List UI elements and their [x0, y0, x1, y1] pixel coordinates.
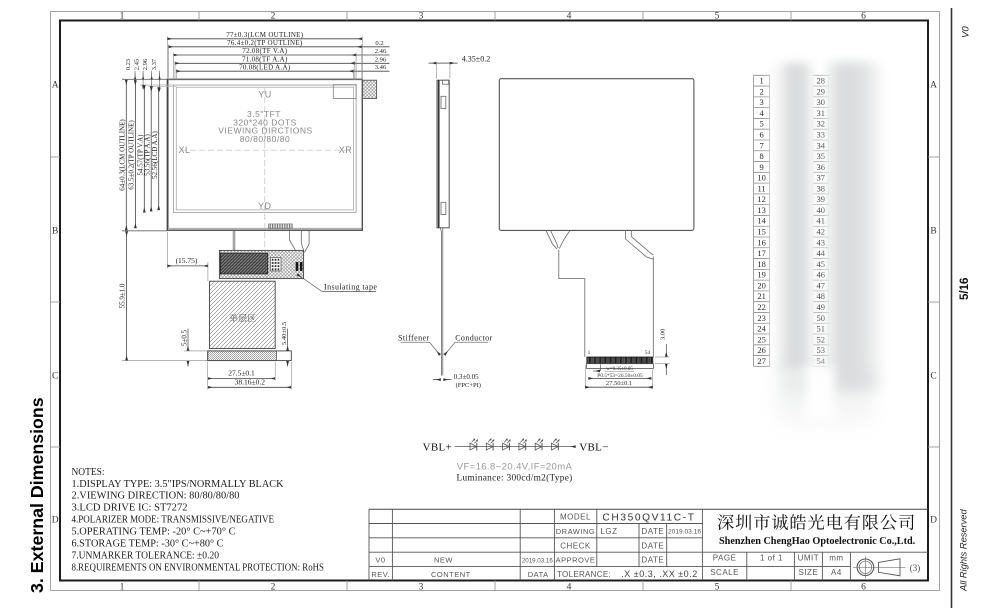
svg-text:47: 47: [816, 280, 825, 290]
svg-text:6: 6: [861, 12, 866, 22]
svg-text:SCALE: SCALE: [710, 568, 739, 577]
svg-text:P0.5*53=26.50±0.05: P0.5*53=26.50±0.05: [597, 373, 643, 379]
svg-text:V0: V0: [375, 556, 385, 565]
svg-text:(15.75): (15.75): [176, 256, 198, 265]
svg-text:41: 41: [816, 216, 825, 226]
svg-text:53: 53: [816, 345, 825, 355]
svg-text:49: 49: [816, 302, 825, 312]
svg-text:38.16±0.2: 38.16±0.2: [235, 378, 266, 387]
svg-text:3.LCD DRIVE IC: ST7272: 3.LCD DRIVE IC: ST7272: [72, 503, 188, 514]
svg-text:24: 24: [757, 324, 766, 334]
svg-text:Luminance: 300cd/m2(Type): Luminance: 300cd/m2(Type): [456, 472, 572, 483]
svg-text:3.37: 3.37: [151, 58, 158, 70]
svg-text:77±0.3(LCM OUTLINE): 77±0.3(LCM OUTLINE): [226, 31, 304, 39]
svg-text:37: 37: [816, 173, 825, 183]
svg-text:44: 44: [816, 248, 825, 258]
svg-text:D: D: [52, 516, 59, 526]
svg-text:B: B: [52, 227, 58, 237]
svg-text:4: 4: [759, 108, 764, 118]
svg-text:10: 10: [757, 173, 766, 183]
svg-text:2.45: 2.45: [134, 59, 141, 70]
svg-text:3. External Dimensions: 3. External Dimensions: [27, 397, 47, 593]
svg-text:52: 52: [816, 334, 825, 344]
svg-text:5±0.5: 5±0.5: [180, 329, 188, 346]
svg-text:3.00: 3.00: [660, 329, 667, 340]
svg-text:Conductor: Conductor: [455, 333, 492, 342]
svg-text:5: 5: [715, 582, 720, 592]
svg-text:17: 17: [757, 248, 766, 258]
svg-text:1 of 1: 1 of 1: [760, 553, 783, 562]
svg-text:13: 13: [757, 205, 766, 215]
svg-text:DATE: DATE: [641, 527, 664, 536]
svg-text:27.5±0.1: 27.5±0.1: [228, 369, 255, 378]
svg-text:0.2: 0.2: [375, 40, 383, 47]
svg-text:LGZ: LGZ: [600, 527, 617, 536]
svg-text:SIZE: SIZE: [799, 568, 819, 577]
svg-text:4: 4: [567, 12, 572, 22]
svg-text:2019.03.16: 2019.03.16: [668, 529, 701, 536]
svg-text:52.56(LCD A.A): 52.56(LCD A.A): [151, 131, 159, 179]
svg-text:6: 6: [861, 582, 866, 592]
svg-text:39: 39: [816, 194, 825, 204]
svg-text:CH350QV11C-T: CH350QV11C-T: [602, 512, 695, 523]
svg-text:16: 16: [757, 237, 766, 247]
svg-text:PAGE: PAGE: [713, 553, 737, 562]
svg-text:33: 33: [816, 129, 825, 139]
svg-text:2.VIEWING DIRECTION: 80/80/80: 2.VIEWING DIRECTION: 80/80/80/80: [72, 491, 240, 502]
svg-text:XL: XL: [178, 145, 190, 155]
svg-text:(3): (3): [910, 563, 921, 573]
svg-text:36: 36: [816, 162, 825, 172]
svg-text:11: 11: [758, 183, 766, 193]
svg-text:2: 2: [271, 12, 276, 22]
svg-text:Insulating tape: Insulating tape: [324, 283, 377, 292]
svg-text:26: 26: [757, 345, 766, 355]
svg-text:(FPC+PI): (FPC+PI): [456, 382, 481, 389]
svg-text:20: 20: [757, 280, 766, 290]
svg-text:12: 12: [757, 194, 766, 204]
svg-text:22: 22: [757, 302, 766, 312]
svg-text:YD: YD: [258, 201, 272, 211]
svg-text:APPROVE: APPROVE: [556, 556, 596, 565]
svg-text:63.5±0.2(TP OUTLINE): 63.5±0.2(TP OUTLINE): [128, 120, 136, 190]
svg-text:31: 31: [816, 108, 825, 118]
svg-text:46: 46: [816, 270, 825, 280]
svg-text:25: 25: [757, 334, 766, 344]
svg-text:Stiffener: Stiffener: [398, 333, 429, 342]
svg-text:7: 7: [759, 140, 763, 150]
svg-text:A4: A4: [831, 568, 842, 577]
svg-text:5: 5: [759, 119, 763, 129]
svg-text:.X ±0.3, .XX ±0.2: .X ±0.3, .XX ±0.2: [621, 569, 697, 579]
svg-text:70.08(LED A.A): 70.08(LED A.A): [239, 63, 291, 71]
svg-text:43: 43: [816, 237, 825, 247]
svg-text:71.08(TF A.A): 71.08(TF A.A): [242, 56, 288, 64]
svg-text:5: 5: [715, 12, 720, 22]
svg-text:5.40±0.5: 5.40±0.5: [281, 322, 288, 345]
svg-text:80/80/80/80: 80/80/80/80: [240, 134, 290, 144]
svg-text:50: 50: [816, 313, 825, 323]
svg-text:VBL+: VBL+: [423, 442, 452, 454]
svg-text:28: 28: [816, 76, 825, 86]
svg-text:DRAWING: DRAWING: [556, 527, 595, 536]
svg-text:5.OPERATING TEMP: -20° C~+70°: 5.OPERATING TEMP: -20° C~+70° C: [72, 527, 236, 538]
svg-text:19: 19: [757, 270, 766, 280]
svg-text:0.23: 0.23: [125, 59, 132, 70]
svg-text:2.96: 2.96: [375, 56, 387, 63]
svg-text:XR: XR: [339, 145, 353, 155]
svg-text:55.9±1.0: 55.9±1.0: [119, 283, 127, 308]
svg-text:VF=16.8~20.4V,IF=20mA: VF=16.8~20.4V,IF=20mA: [457, 461, 573, 472]
svg-text:All Rights Reserved: All Rights Reserved: [959, 509, 969, 592]
svg-text:DATE: DATE: [641, 556, 664, 565]
svg-text:15: 15: [757, 227, 766, 237]
svg-text:51: 51: [816, 324, 825, 334]
svg-text:72.08(TF V.A): 72.08(TF V.A): [242, 47, 287, 55]
svg-text:UMIT: UMIT: [798, 553, 820, 562]
svg-text:29: 29: [816, 86, 825, 96]
svg-text:5/16: 5/16: [959, 278, 971, 300]
svg-text:1: 1: [120, 12, 125, 22]
svg-text:1: 1: [120, 582, 125, 592]
svg-text:V0: V0: [961, 26, 972, 38]
svg-text:4: 4: [567, 582, 572, 592]
svg-text:DATA: DATA: [528, 570, 549, 579]
svg-text:6.STORAGE TEMP: -30° C~+80° C: 6.STORAGE TEMP: -30° C~+80° C: [72, 539, 224, 550]
svg-text:7.UNMARKER TOLERANCE: ±0.20: 7.UNMARKER TOLERANCE: ±0.20: [72, 550, 220, 561]
svg-text:3: 3: [419, 582, 424, 592]
svg-text:30: 30: [816, 97, 825, 107]
svg-text:38: 38: [816, 183, 825, 193]
svg-text:REV.: REV.: [371, 570, 390, 579]
svg-text:8: 8: [759, 151, 763, 161]
svg-text:2: 2: [271, 582, 276, 592]
svg-text:A: A: [52, 81, 59, 91]
svg-text:D: D: [930, 516, 937, 526]
svg-text:1: 1: [588, 350, 591, 356]
svg-text:NOTES:: NOTES:: [72, 467, 105, 478]
svg-text:C: C: [52, 372, 58, 382]
svg-text:mm: mm: [829, 553, 843, 562]
svg-text:B: B: [930, 227, 936, 237]
svg-text:4.35±0.2: 4.35±0.2: [462, 54, 490, 63]
svg-text:CHECK: CHECK: [560, 541, 591, 550]
svg-text:4.POLARIZER MODE: TRANSMISSIVE: 4.POLARIZER MODE: TRANSMISSIVE/NEGATIVE: [72, 515, 275, 526]
svg-text:3: 3: [419, 12, 424, 22]
svg-text:1.DISPLAY TYPE: 3.5″IPS/NORMA: 1.DISPLAY TYPE: 3.5″IPS/NORMALLY BLACK: [72, 479, 285, 490]
svg-text:CONTENT: CONTENT: [431, 570, 471, 579]
svg-text:54: 54: [816, 356, 825, 366]
svg-text:8.REQUIREMENTS ON ENVIRONMENTA: 8.REQUIREMENTS ON ENVIRONMENTAL PROTECTI…: [72, 562, 325, 573]
svg-text:MODEL: MODEL: [560, 513, 591, 522]
svg-text:18: 18: [757, 259, 766, 269]
svg-text:3.46: 3.46: [375, 64, 387, 71]
svg-text:TOLERANCE:: TOLERANCE:: [557, 570, 611, 579]
svg-text:27.50±0.1: 27.50±0.1: [606, 380, 632, 387]
svg-text:6: 6: [759, 129, 763, 139]
svg-text:27: 27: [757, 356, 766, 366]
svg-text:40: 40: [816, 205, 825, 215]
svg-text:21: 21: [757, 291, 766, 301]
svg-text:A: A: [930, 81, 937, 91]
svg-text:2.46: 2.46: [375, 48, 387, 55]
svg-text:9: 9: [759, 162, 763, 172]
svg-text:14: 14: [757, 216, 766, 226]
svg-text:VBL−: VBL−: [579, 442, 608, 454]
svg-text:76.4±0.2(TP OUTLINE): 76.4±0.2(TP OUTLINE): [227, 39, 303, 47]
svg-text:35: 35: [816, 151, 825, 161]
svg-text:54: 54: [645, 350, 651, 356]
svg-text:2: 2: [759, 86, 763, 96]
svg-text:3: 3: [759, 97, 763, 107]
svg-text:42: 42: [816, 227, 825, 237]
svg-text:Shenzhen ChengHao Optoelectron: Shenzhen ChengHao Optoelectronic Co.,Ltd…: [719, 536, 916, 547]
svg-text:0.3±0.05: 0.3±0.05: [454, 373, 479, 381]
svg-text:YU: YU: [258, 90, 272, 100]
svg-text:2.96: 2.96: [142, 58, 149, 70]
svg-text:2019.03.16: 2019.03.16: [522, 557, 554, 564]
svg-text:48: 48: [816, 291, 825, 301]
svg-text:1: 1: [759, 76, 763, 86]
svg-text:DATE: DATE: [641, 541, 664, 550]
svg-text:NEW: NEW: [434, 556, 453, 565]
svg-text:45: 45: [816, 259, 825, 269]
svg-text:32: 32: [816, 119, 825, 129]
svg-text:C: C: [930, 372, 936, 382]
svg-text:34: 34: [816, 140, 825, 150]
svg-text:64±0.3(LCM OUTLINE): 64±0.3(LCM OUTLINE): [118, 119, 126, 191]
svg-text:23: 23: [757, 313, 766, 323]
